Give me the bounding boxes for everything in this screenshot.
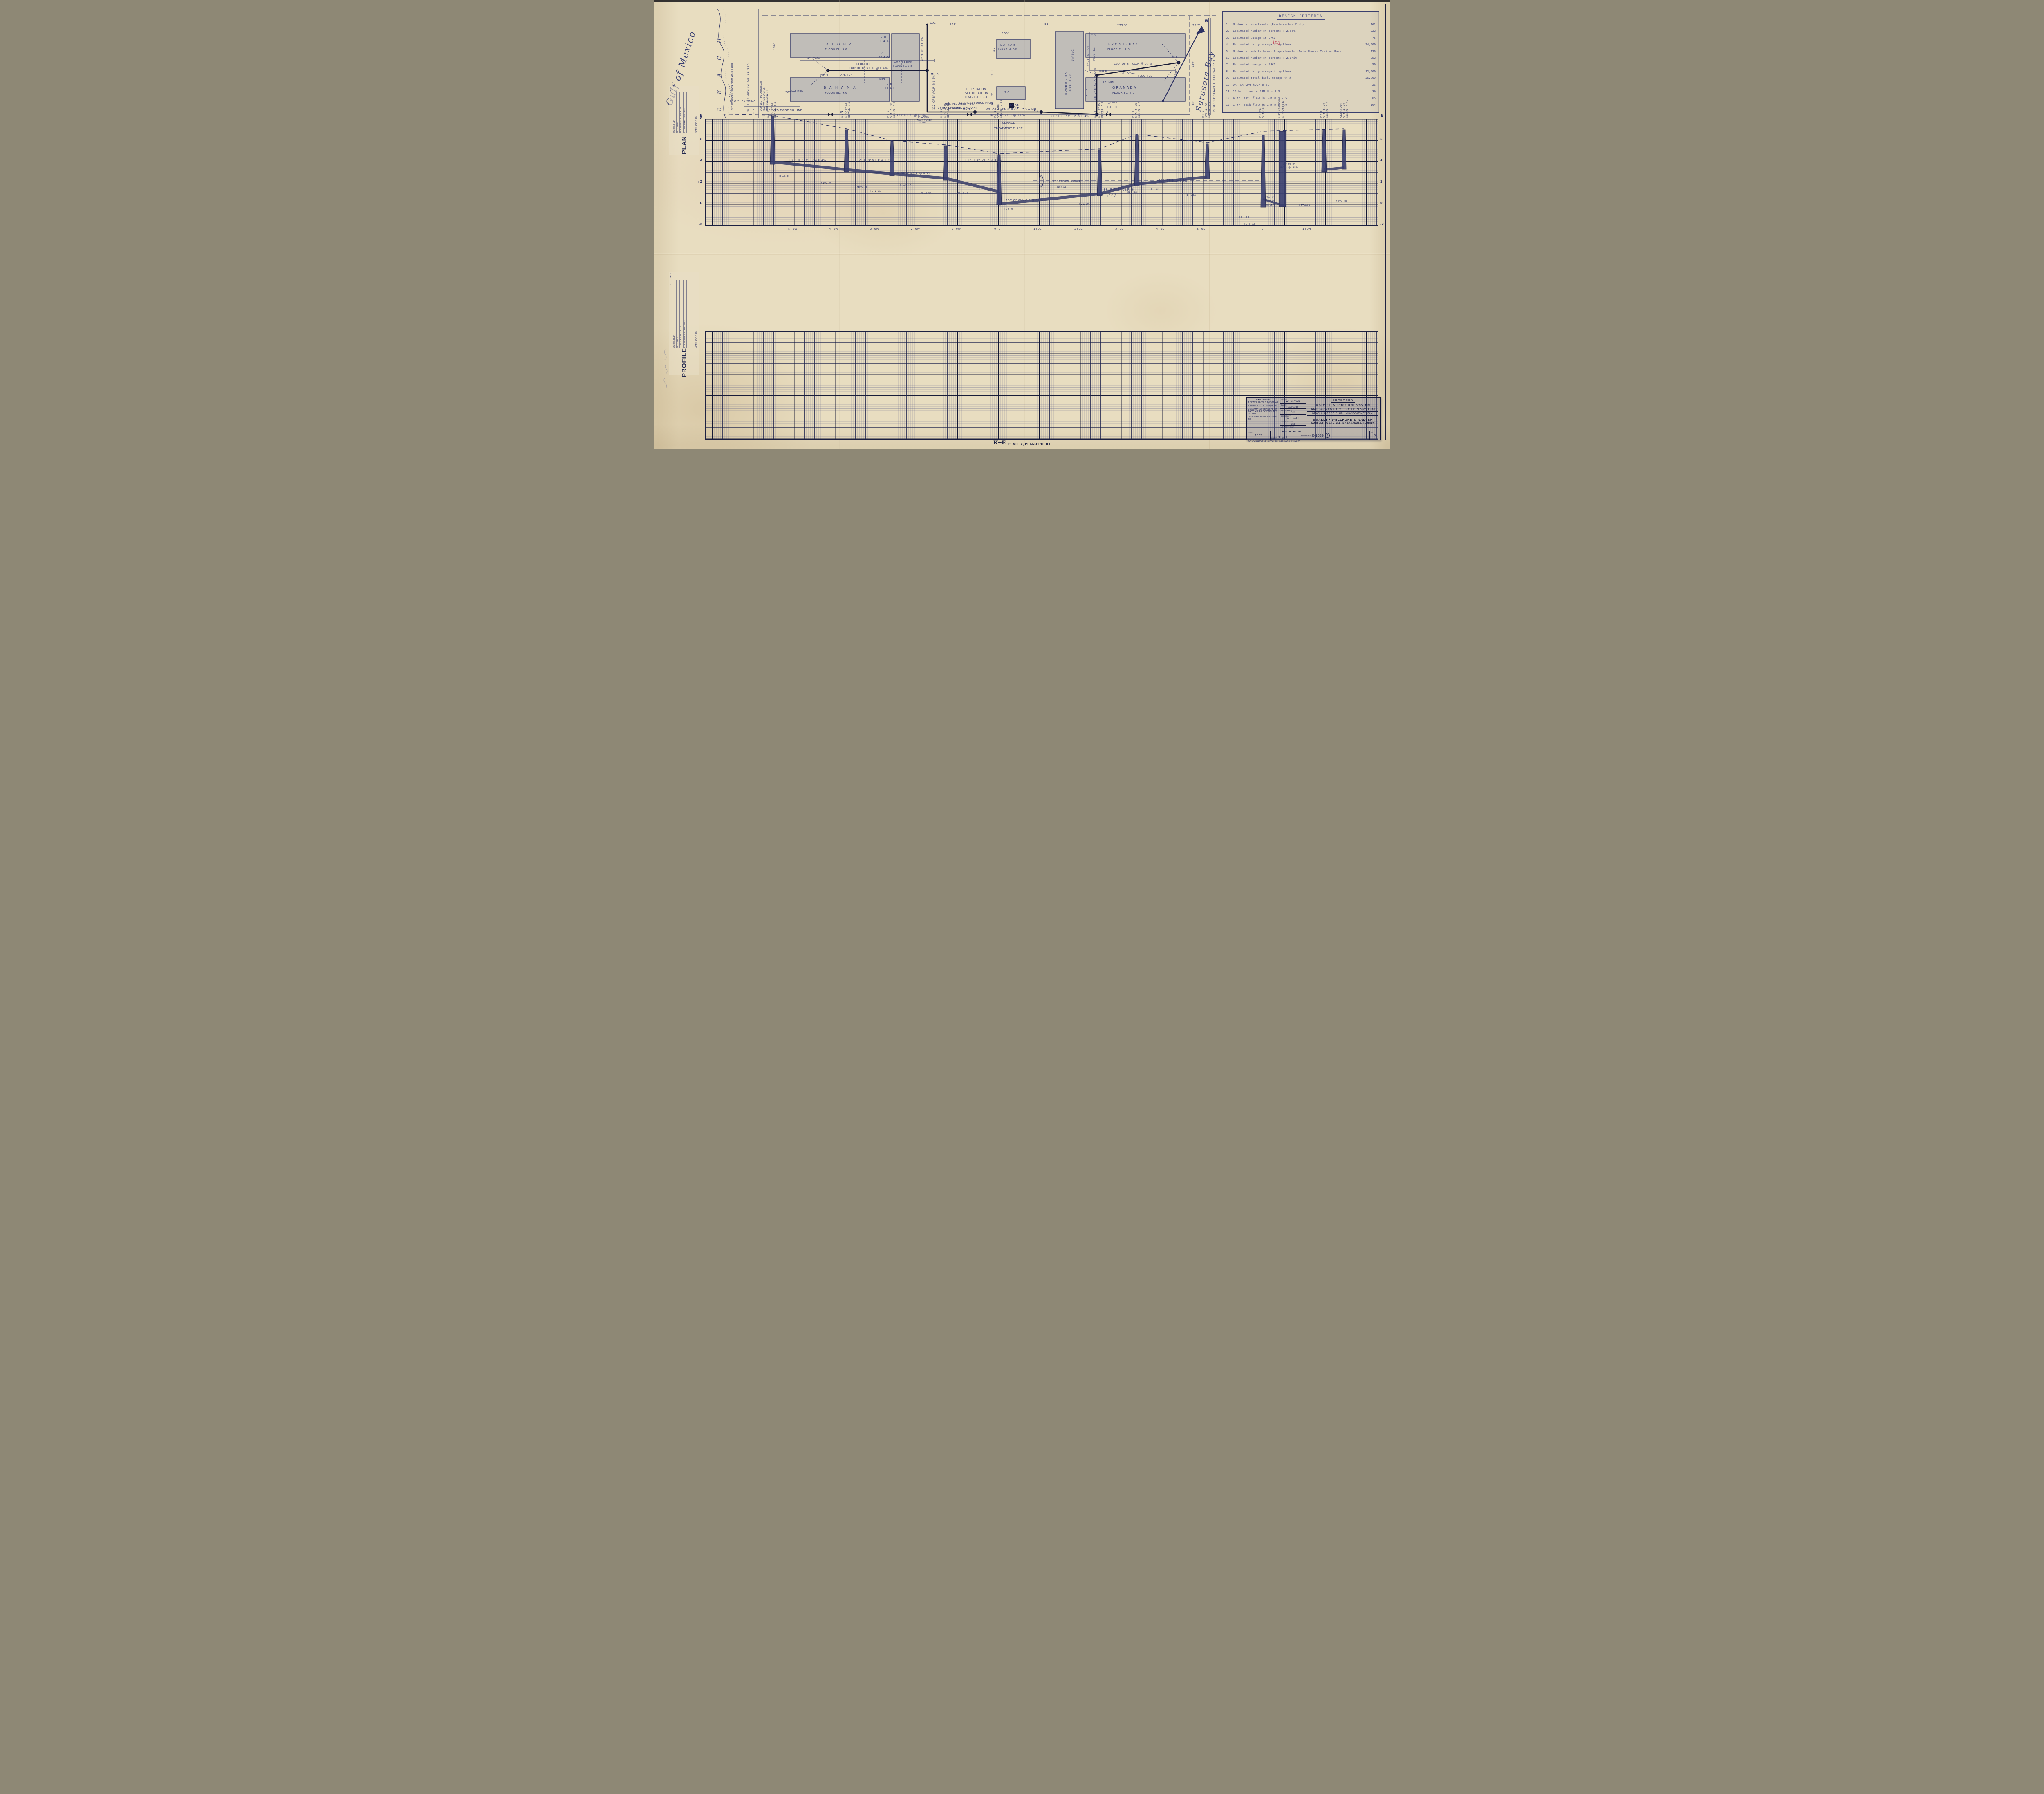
row-no: 10. <box>1226 82 1233 88</box>
plan-margin-title: PLAN <box>669 135 699 155</box>
mh1a-stack <box>943 146 948 180</box>
match-letter-left: B <box>700 114 702 117</box>
dakar-name: DA KAR <box>1000 43 1016 47</box>
dim-150e: 150' <box>1192 61 1195 67</box>
ke-logo: K+E <box>993 440 1005 446</box>
seg50-2: 8"VCP <box>1266 200 1274 203</box>
red-mark: — <box>1355 41 1361 48</box>
seg250-label: 250' OF 8" V.C.P. @ 0.4% <box>1051 114 1089 118</box>
footer: K+E PLATE 2, PLAN-PROFILE KEUFFEL & ESSE… <box>993 440 1051 448</box>
dim-226: 226.17' <box>840 74 852 77</box>
criteria-row: 4.Estimated daily useage in gallons—24,2… <box>1226 41 1376 48</box>
seg112-label: 112' OF 8" V.C.P. @ 0.3% <box>932 75 935 110</box>
fe256: FE=2.56 <box>1186 194 1196 197</box>
dim-30: 30' <box>785 91 790 94</box>
row-value: 161 <box>1361 21 1376 28</box>
row-no: 4. <box>1226 41 1233 48</box>
min-label: MIN. <box>879 78 886 81</box>
dim-20: 20' <box>991 92 994 96</box>
mh5-stack <box>1097 150 1102 196</box>
seg180-label: 180' OF 8" V.C.P. @ 0.4% <box>849 67 888 70</box>
min7a-label: 7'± <box>881 35 886 38</box>
fe291: FE=2.91 <box>870 190 881 193</box>
row-value: 322 <box>1361 28 1376 34</box>
criteria-row: 5.Number of mobile homes & apartments (T… <box>1226 48 1376 55</box>
drawing-no-value: E-1039 <box>1312 434 1324 437</box>
dim-150w: 150' <box>773 43 776 50</box>
pcp-2: P.C.P. @ .85% <box>1280 166 1298 169</box>
lift1-label: LIFT STATION <box>966 87 986 91</box>
station: 2+0W <box>911 227 920 231</box>
title-line2: AND SEWAGE COLLECTION SYSTEM <box>1307 408 1378 412</box>
mh3n-stack <box>1322 130 1327 172</box>
row-label: Estimated total daily useage ④+⑧ <box>1233 75 1355 81</box>
seg50-label: 50' OF 8" @ 0.4% <box>921 37 924 61</box>
pvc3b-label: 3" P.V.C. <box>1122 71 1135 74</box>
waterplant-3: PLANT <box>919 122 926 124</box>
of-value: 1 <box>1286 436 1287 439</box>
row-label: Number of apartments (Beach-Harbor Club) <box>1233 21 1355 28</box>
row-value: 26 <box>1361 82 1376 88</box>
mh6-label: MH 6 <box>1099 70 1107 73</box>
mh5-callout: MH 5STA. 2+50 ERIM EL. 5.1 <box>1094 100 1104 118</box>
mh1n-stack <box>1261 135 1266 207</box>
mh3-callout: MH 3STA. 3+72RIM EL. 7.0 <box>841 101 851 118</box>
station: 5+0E <box>1197 227 1205 231</box>
dim-2795: 279.5' <box>1117 24 1127 27</box>
profile-grid <box>705 119 1378 226</box>
mh4-stack <box>770 116 775 164</box>
fe402: FE=4.02 <box>779 175 789 178</box>
storm-sewer-crossing <box>1039 176 1043 186</box>
cleanout-stack <box>1342 130 1346 169</box>
row-no: 2. <box>1226 28 1233 34</box>
revision-b: B SEWERS & L.S. 7/23/68 WR <box>1248 405 1279 408</box>
fe330: FE=3.30 <box>821 182 831 184</box>
mh7-label: MH 7 <box>1172 56 1180 59</box>
seg50-1: 50 LF. <box>1266 196 1274 199</box>
manhole-1a <box>973 110 977 114</box>
plan-margin-block: PLAN BYDATE SURVEYED PLOTTED ALIGNMENT C… <box>669 86 699 155</box>
pencil-notes <box>657 348 674 397</box>
seg130b-profile: 130' OF 8" V.C.P. @ 1.0% <box>965 159 1002 162</box>
job-value: 1039 <box>1248 434 1269 437</box>
manhole-1 <box>1040 110 1043 114</box>
mh1a-callout: MH 1ASTA. 1+30RIM EL. 5.5 <box>940 101 950 118</box>
dim-50: 50' <box>992 47 995 52</box>
credits-panel: SCALEAS SHOWN DATE4-25-68 DESIGNED BYDSC… <box>1280 398 1306 431</box>
tee6-label: 6" TEE <box>1108 102 1117 105</box>
mh1-label: MH 1 <box>1031 108 1039 111</box>
station: 0 <box>1262 227 1264 231</box>
margin-row: RT. OF WAY CHECKED <box>684 92 687 133</box>
row-value: 75 <box>1361 35 1376 41</box>
row-no: 6. <box>1226 55 1233 61</box>
row-label: 4 hr. max. flow in GPM ⑩ x 2.5 <box>1233 95 1355 101</box>
criteria-row: 8.Estimated daily useage in gallons12,60… <box>1226 68 1376 75</box>
axis-left: 0 <box>695 201 702 205</box>
connect-note-1: CONNECT TO LONGBOAT <box>760 81 762 111</box>
dim-100: 100' <box>1002 32 1009 35</box>
criteria-row: 13.1 hr. peak flow in GPM ⑩ x 4.0104 <box>1226 102 1376 108</box>
fe287: FE=2.87 <box>900 184 911 187</box>
fe328: FE=3.28 <box>857 186 867 188</box>
station: 2+0E <box>1074 227 1083 231</box>
seg150-profile: 150' OF 8" @ 0.4% <box>1159 179 1187 182</box>
fe412-label: FE 4.12 <box>879 40 890 43</box>
vc6-label: 6" V.C. @ 1.5% <box>1087 46 1090 66</box>
fe196: FE 1.96 <box>1150 188 1159 191</box>
lift2-label: SEE DETAIL ON <box>965 92 988 95</box>
criteria-row: 10.DAF in GPM ⑧/24 x 6026 <box>1226 82 1376 88</box>
row-no: 8. <box>1226 68 1233 75</box>
road-name-label: GULF OF MEXICO DR. SR 780 <box>747 63 750 112</box>
row-no: 7. <box>1226 61 1233 68</box>
drawing-circle: 9 <box>1325 433 1330 438</box>
frontenac-name: FRONTENAC <box>1108 43 1139 46</box>
title-block: REVISIONS A SEWER PROFILE 7/11/68 WR B S… <box>1246 397 1381 440</box>
pvc15-label: 1½" PVC <box>1071 49 1074 61</box>
row-value: 12,600 <box>1361 68 1376 75</box>
pvc4-label: 4" P.V.C. <box>1007 108 1020 111</box>
station: 4+0E <box>1156 227 1164 231</box>
date-header: DATE <box>670 87 672 92</box>
margin-row: ALIGNMENT CHECKED <box>680 92 684 133</box>
profile-linework <box>706 119 1378 225</box>
station: 0+0 <box>994 227 1000 231</box>
margin-row: SURVEYED <box>673 92 677 133</box>
station: 1+0N <box>1302 227 1311 231</box>
row-no: 12. <box>1226 95 1233 101</box>
title-panel: PROPOSED WATER DISTRIBUTION SYSTEM AND S… <box>1306 398 1380 431</box>
conform-note: TO CONFORM WITH PLUMBING LAYOUT <box>1248 440 1300 443</box>
drawing-no-label: DRAWING NO. <box>1300 435 1311 437</box>
seawall-label: PROPOSED SEAWALL @ ELEVATION 4.0 <box>1213 56 1216 112</box>
row-value: 126 <box>1361 48 1376 55</box>
row-label: Number of mobile homes & apartments (Twi… <box>1233 48 1355 55</box>
mh6-stack <box>1134 135 1139 186</box>
date-value: 4-25-68 <box>1281 406 1305 409</box>
lift3-label: DWG E-1039-10 <box>965 96 990 99</box>
row-value: 39 <box>1361 88 1376 95</box>
axis-left: -2 <box>695 222 702 226</box>
row-no: 11. <box>1226 88 1233 95</box>
gs-existing-label: 2" G.S. EXISTING <box>730 100 756 103</box>
approved-label: APPROVED BY <box>1281 426 1305 428</box>
row-label: DAF in GPM ⑧/24 x 60 <box>1233 82 1355 88</box>
mh1n-callout: MH #1STA 0+00 <box>1259 104 1265 118</box>
station: 3+0E <box>1115 227 1123 231</box>
storm-label: 10" STORM SEWER <box>1053 180 1081 183</box>
plate-label: PLATE 2, PLAN-PROFILE <box>1008 442 1051 446</box>
no-label: NO. <box>695 331 698 335</box>
dim-153: 153' <box>950 23 956 26</box>
row-label: Estimated number of persons @ 2/apt. <box>1233 28 1355 34</box>
seg50-3: @ .8% <box>1266 204 1275 206</box>
margin-row: PLOTTED <box>677 280 680 348</box>
row-label: 16 hr. flow in GPM ⑩ x 1.5 <box>1233 88 1355 95</box>
bahama-floor: FLOOR EL. 9.0 <box>825 91 847 94</box>
checked-value: DSC <box>1281 423 1305 426</box>
margin-row: SURVEYED <box>673 280 677 348</box>
cleanout-callout: CLEANOUTSTA. 4+22RIM EL. 7.0± <box>1340 99 1349 118</box>
building-edgewater <box>1055 32 1084 109</box>
seg130b-label: 130' OF 8" V.C.P @ 1.0% <box>987 114 1025 117</box>
sewer-profile-west <box>773 162 999 192</box>
fe205: FE 2.05 <box>1057 186 1066 189</box>
mh3-stack <box>844 130 849 172</box>
revision-a: A SEWER PROFILE 7/11/68 WR <box>1248 402 1279 404</box>
red-mark: — <box>1355 48 1361 55</box>
row-value: 252 <box>1361 55 1376 61</box>
axis-right: 4 <box>1380 159 1383 162</box>
margin-row: STRUCTURES CHECKED <box>684 280 687 348</box>
fe186: FE 1.86 <box>1127 191 1137 194</box>
frontenac-floor: FLOOR EL. 7.0 <box>1107 48 1130 51</box>
row-no: 13. <box>1226 102 1233 108</box>
design-criteria-table: DESIGN CRITERIA 1.Number of apartments (… <box>1222 11 1379 113</box>
fe410-label: FE 4.10 <box>885 87 896 90</box>
aloha-floor: FLOOR EL. 9.0 <box>825 48 847 51</box>
dim-19_5: 19.5' <box>753 108 755 114</box>
row-value: 50 <box>1361 61 1376 68</box>
scan-edge <box>654 0 1390 2</box>
seg112-profile: 112' OF 8" V.C.P @ 0.3% <box>855 159 892 162</box>
row-label: 1 hr. peak flow in GPM ⑩ x 4.0 <box>1233 102 1355 108</box>
scale-value: AS SHOWN <box>1281 400 1305 403</box>
stp-label-1: SEWAGE <box>1002 121 1015 125</box>
mh4-label: MH 4 <box>820 73 828 76</box>
mh2-callout: MH 2STA. 2+60RIM EL. 5.9 <box>887 101 896 118</box>
edgewater-name: EDGEWATER <box>1064 72 1067 95</box>
caribbean-floor: FLOOR EL. 7.5 <box>893 65 912 67</box>
sewer-profile-north <box>1324 168 1344 170</box>
title-line1: WATER DISTRIBUTION SYSTEM <box>1307 403 1378 407</box>
criteria-row: 7.Estimated useage in GPCD50 <box>1226 61 1376 68</box>
fe000: FE 0.00 <box>1004 208 1013 211</box>
station: 1+0E <box>1033 227 1042 231</box>
mh1-callout: MH 1STA. 0.00RIM EL. 4.65 <box>994 100 1004 118</box>
caribbean-name: CARIBBEAN <box>894 61 913 63</box>
designed-value: DSC <box>1281 411 1305 414</box>
waterplant-2: FROM WATER <box>917 119 932 121</box>
feneg: FE(-)0.1 <box>1239 216 1249 219</box>
building-granada <box>1086 78 1185 101</box>
row-no: 5. <box>1226 48 1233 55</box>
dim-45: 45' <box>1192 101 1195 105</box>
granada-name: GRANADA <box>1112 86 1137 90</box>
ground-line <box>716 114 1344 154</box>
acor-label: AC OR <box>1009 104 1019 107</box>
granada-floor: FLOOR EL. 7.0 <box>1112 91 1135 94</box>
station: 5+0W <box>788 227 797 231</box>
mh6-callout: MH 6STA. 3+38RIM EL. 6.5 <box>1132 101 1141 118</box>
seg88-profile-1: 88 LF OF 8" C.I.P. @ <box>1104 188 1134 191</box>
mh7-stack <box>1205 144 1210 179</box>
axis-right: 2 <box>1380 180 1383 184</box>
ci4-label: 4" C.I. <box>1085 88 1088 96</box>
notebook-label: NOTE BOOK <box>695 120 698 133</box>
row-value: 65 <box>1361 95 1376 101</box>
row-no: 9. <box>1226 75 1233 81</box>
revision-d: D REVISED WATER LINES 9-6-68 <box>1248 416 1279 421</box>
axis-right: -2 <box>1380 222 1384 226</box>
mh1-stack <box>997 155 1002 205</box>
criteria-row: 11.16 hr. flow in GPM ⑩ x 1.539 <box>1226 88 1376 95</box>
fe348n: FE=3.48 <box>1336 200 1347 202</box>
small70-label: 7.0 <box>1004 91 1009 94</box>
revisions-panel: REVISIONS A SEWER PROFILE 7/11/68 WR B S… <box>1247 398 1280 431</box>
stp-label-2: TREATMENT PLANT <box>994 127 1022 130</box>
station: 1+0W <box>952 227 961 231</box>
beach-label: B E A C H <box>717 33 723 111</box>
plugtee1-label: PLUG TEE <box>856 63 871 66</box>
title-proposed: PROPOSED <box>1331 399 1355 403</box>
revisions-title: REVISIONS <box>1248 399 1279 401</box>
row-value: 24,200 <box>1361 41 1376 48</box>
min7b-label: 7'± <box>881 52 886 55</box>
seg250-profile: 250' OF 8" V.C.P. @ 0.4% <box>1006 199 1043 202</box>
no-label: NO. <box>695 116 698 120</box>
pcp-1: 50' OF 8" <box>1283 163 1295 166</box>
fepos: FE(+)0.5 <box>1244 223 1255 226</box>
by-header: BY <box>670 283 672 285</box>
row-label: Estimated daily useage in gallons <box>1233 41 1355 48</box>
plan-view: Gulf of Mexico B E A C H APPROXIMATE MEA… <box>705 9 1220 118</box>
row-label: Estimated useage in GPCD <box>1233 61 1355 68</box>
criteria-row: 12.4 hr. max. flow in GPM ⑩ x 2.565 <box>1226 95 1376 101</box>
row-label: Estimated useage in GPCD <box>1233 35 1355 41</box>
date-header: DATE <box>670 273 672 278</box>
row-no: 3. <box>1226 35 1233 41</box>
edgewater-floor: FLOOR EL 7.0 <box>1069 74 1072 93</box>
criteria-row: 9.Estimated total daily useage ④+⑧36,800 <box>1226 75 1376 81</box>
north-letter: N <box>1205 18 1208 23</box>
fe100: FE 1.00 <box>1079 203 1089 206</box>
by-header: BY <box>670 96 672 99</box>
station: 3+0W <box>870 227 879 231</box>
red32-label: 3X2 RED. <box>790 89 805 92</box>
sheet-label: SHEET <box>1271 437 1277 439</box>
notebook-label: NOTE BOOK <box>695 335 698 348</box>
blueprint-sheet: Gulf of Mexico B E A C H APPROXIMATE MEA… <box>654 0 1390 448</box>
dim-255: 25.5' <box>1192 24 1200 27</box>
revision-c: C ADD MH 1A, REVISE FE MH 1A TO MH 4 & E… <box>1248 408 1279 415</box>
building-caribbean <box>892 34 919 101</box>
of-label: OF <box>1282 437 1284 439</box>
min7c-label: 7'± <box>887 82 892 85</box>
aloha-name: A L O H A <box>826 43 853 46</box>
future-label: FUTURE <box>1107 106 1118 109</box>
cleanout <box>926 24 928 26</box>
row-value: 104 <box>1361 102 1376 108</box>
fe406-label: FE 4.06 <box>879 56 890 59</box>
connect-note-2: KEY WATER SYSTEM <box>763 87 766 111</box>
title-line3: BEACH-HARBOR CLUB, LONGBOAT KEY, FLA. <box>1307 412 1378 416</box>
row-no: 1. <box>1226 21 1233 28</box>
plugtee2-label: PLUG TEE <box>1093 47 1096 61</box>
mh3n-callout: MH 3STA. 3+72RIM EL. 7.0 <box>1320 101 1329 118</box>
seg88-label: 88' OF 8" C.I.P. @ 0.4% <box>1094 68 1096 100</box>
waterplant-1: 3" WATER <box>918 116 929 119</box>
drawn-value: W.R. & A.J. <box>1281 417 1305 420</box>
match-letter-right: B <box>1381 114 1383 117</box>
margin-row: GRADES CHECKED <box>680 280 684 348</box>
margin-row: PLOTTED <box>677 92 680 133</box>
min10-label: 10' MIN. <box>1103 81 1115 84</box>
axis-right: 0 <box>1380 201 1383 205</box>
mh4-callout: MH 4STA. 5+52RIM EL. 8.3 <box>767 101 777 118</box>
station: 4+0W <box>829 227 838 231</box>
building-small <box>997 87 1025 100</box>
co2-label: C.O. <box>1091 34 1097 37</box>
fe114: FE 1.14 <box>979 188 988 191</box>
dakar-floor: FLOOR EL 7.0 <box>998 48 1017 51</box>
seg130a-profile: 130' OF 8" V.C.P. @ 0.3% <box>893 172 931 175</box>
high-water-label: APPROXIMATE MEAN HIGH WATER LINE <box>731 63 733 110</box>
row-label: Estimated number of persons @ 2/unit <box>1233 55 1355 61</box>
red-mark: — <box>1355 21 1361 28</box>
axis-right: 6 <box>1380 137 1383 141</box>
plugtee3-label: PLUG TEE <box>1138 74 1152 78</box>
manhole-3 <box>926 69 929 72</box>
dim-7117: 71.17 <box>991 69 994 77</box>
criteria-row: 2.Estimated number of persons @ 2/apt.—3… <box>1226 28 1376 34</box>
co1-label: C.O. <box>930 21 937 25</box>
criteria-row: 1.Number of apartments (Beach-Harbor Clu… <box>1226 21 1376 28</box>
firm-name: SMALLY • WELLFORD & NALVEN <box>1307 418 1378 422</box>
row-label: Estimated daily useage in gallons <box>1233 68 1355 75</box>
fe328n: FE=3.28 <box>1299 204 1310 206</box>
row-value: 36,800 <box>1361 75 1376 81</box>
fe250: FE=2.50 <box>921 192 931 195</box>
dim-88: 88' <box>1044 23 1049 26</box>
fe247: FE=2.47 <box>957 192 968 195</box>
liftstation-callout: LIFT STATIONSTA 0+50 N <box>1278 99 1285 118</box>
seg180-profile: 180' OF 8" V.C.P @ 0.4% <box>789 159 826 162</box>
criteria-row: 6.Estimated number of persons @ 2/unit25… <box>1226 55 1376 61</box>
pvc3a-label: 3" P.V.C. <box>807 56 820 60</box>
sheet-value: 1 <box>1278 436 1280 439</box>
seg150-label: 150' OF 8" V.C.P. @ 0.4% <box>1114 62 1152 65</box>
red-mark: — <box>1355 28 1361 34</box>
axis-left: +2 <box>695 180 702 184</box>
red-mark: — <box>1355 35 1361 41</box>
rev-value: D <box>1371 434 1379 437</box>
mh7-callout: MH 7STA. 4+88RIM EL. 5.7 <box>1202 101 1212 118</box>
firm-subtitle: CONSULTING ENGINEERS • SARASOTA, FLORIDA <box>1307 422 1378 424</box>
criteria-title: DESIGN CRITERIA <box>1277 14 1325 19</box>
axis-left: 4 <box>695 159 702 162</box>
bahama-name: B A H A M A <box>824 86 857 90</box>
fe151: FE 1.51 <box>1107 195 1116 198</box>
criteria-row: 3.Estimated useage in GPCD—75 <box>1226 35 1376 41</box>
building-bahama <box>790 78 890 101</box>
